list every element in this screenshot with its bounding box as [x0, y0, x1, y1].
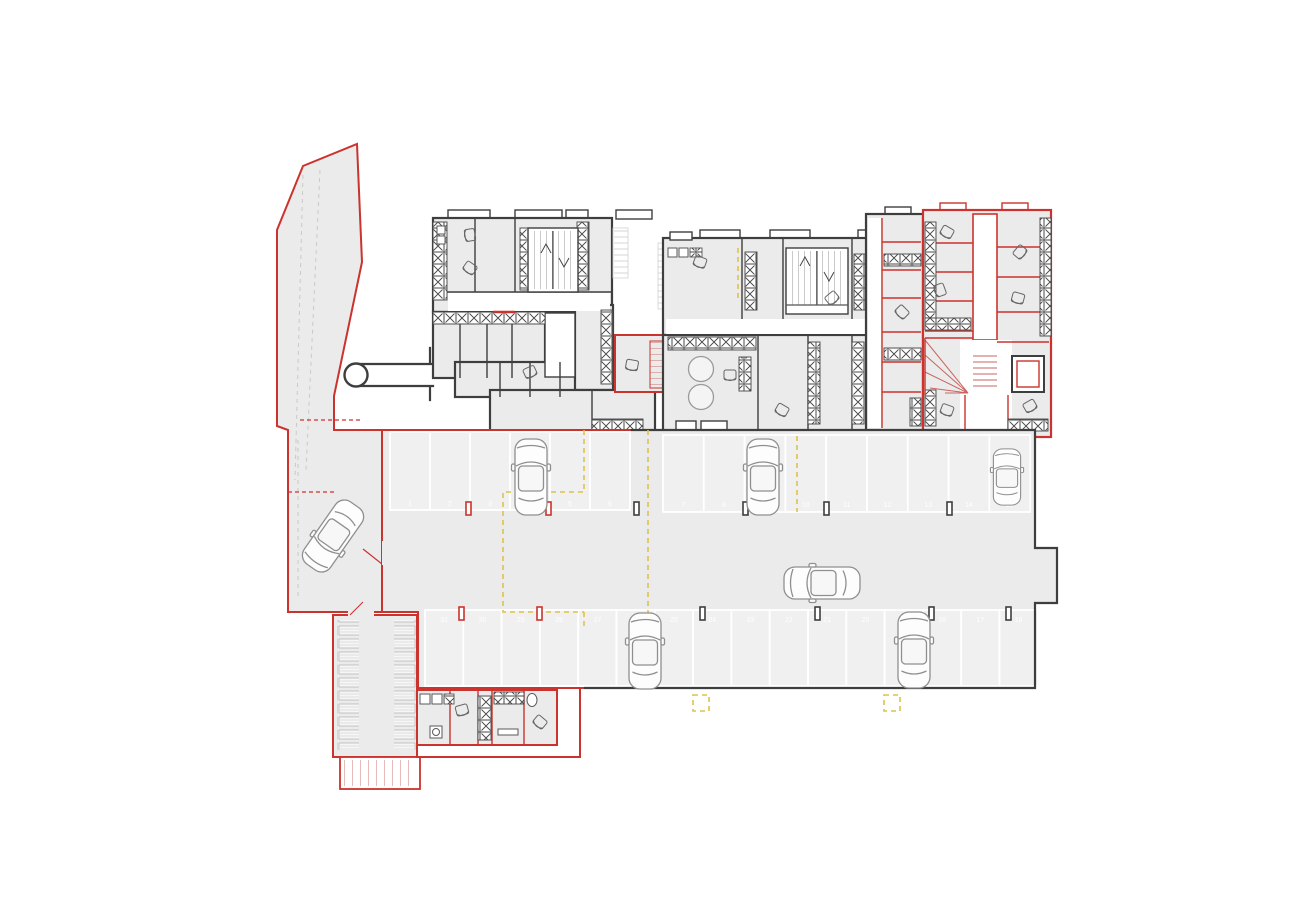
- parking-stall: [949, 435, 990, 512]
- parking-stalls-top-left: 123456: [390, 432, 630, 510]
- round-tank-icon: [689, 385, 714, 410]
- stall-number: 7: [681, 502, 685, 509]
- parked-car: [512, 439, 551, 515]
- parking-stall: [663, 435, 704, 512]
- stall-number: 17: [976, 617, 984, 624]
- stair-hall: [960, 340, 1012, 430]
- parking-stall: [826, 435, 867, 512]
- stall-number: 11: [843, 502, 850, 509]
- parking-stalls-bottom: 31302928272625242322212019181716: [425, 610, 1038, 686]
- stall-number: 6: [608, 501, 612, 508]
- floor-plan-canvas: 123456 789101112131415 31302928272625242…: [0, 0, 1300, 919]
- stall-number: 23: [747, 617, 755, 624]
- round-tank-icon: [689, 357, 714, 382]
- driving-car: [784, 564, 860, 603]
- stall-number: 27: [594, 617, 602, 624]
- stall-number: 2: [448, 501, 452, 508]
- corridor: [868, 218, 881, 428]
- stair-run-icon: [340, 757, 420, 789]
- stall-number: 20: [862, 617, 870, 624]
- stall-number: 12: [884, 502, 892, 509]
- parking-stall: [704, 435, 745, 512]
- stall-number: 21: [823, 617, 831, 624]
- stall-number: 22: [785, 617, 793, 624]
- stall-number: 10: [802, 502, 810, 509]
- elevator-shaft-icon: [1012, 356, 1044, 392]
- storage-rack-icon: [394, 620, 416, 750]
- parking-stall: [908, 435, 949, 512]
- stall-number: 25: [670, 617, 678, 624]
- stall-number: 16: [1015, 617, 1023, 624]
- parking-stall: [470, 432, 510, 510]
- stall-number: 3: [488, 501, 492, 508]
- stair-run-icon: [786, 248, 848, 314]
- red-section: [923, 203, 1051, 437]
- parking-stall: [785, 435, 826, 512]
- round-duct-icon: [345, 364, 368, 387]
- service-tunnel: [345, 348, 434, 400]
- shaft-dashed: [693, 695, 709, 711]
- stall-number: 31: [440, 617, 448, 624]
- parked-car: [895, 612, 934, 688]
- stall-number: 5: [568, 501, 572, 508]
- storage-rack-icon: [337, 620, 359, 750]
- parking-stall: [590, 432, 630, 510]
- corridor: [973, 214, 997, 340]
- parked-car-small: [990, 449, 1023, 505]
- parking-stalls-top-right: 789101112131415: [663, 435, 1030, 512]
- floor-plan-svg: 123456 789101112131415 31302928272625242…: [0, 0, 1300, 919]
- parked-car: [744, 439, 783, 515]
- stall-number: 1: [408, 501, 412, 508]
- parked-car: [626, 613, 665, 689]
- stall-number: 28: [555, 617, 563, 624]
- stall-number: 8: [722, 502, 726, 509]
- stall-number: 18: [938, 617, 946, 624]
- stall-number: 24: [708, 617, 716, 624]
- wing-c: [866, 207, 923, 432]
- parking-stall: [867, 435, 908, 512]
- parking-stall: [430, 432, 470, 510]
- stall-number: 29: [517, 617, 525, 624]
- parking-stall: [390, 432, 430, 510]
- corridor: [448, 293, 610, 311]
- stall-number: 14: [965, 502, 973, 509]
- stair-run-icon: [528, 228, 578, 292]
- door-opening: [348, 611, 374, 619]
- stall-number: 30: [479, 617, 487, 624]
- stall-number: 13: [924, 502, 932, 509]
- areaway-stair-hatch: [613, 228, 628, 278]
- shaft-dashed: [884, 695, 900, 711]
